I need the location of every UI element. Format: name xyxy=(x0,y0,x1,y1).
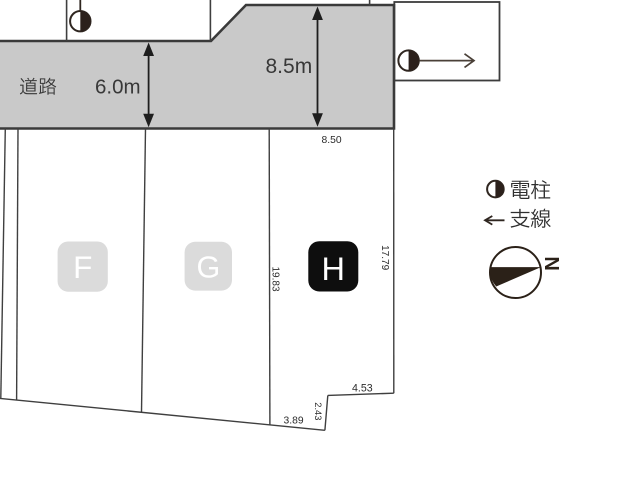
svg-text:8.50: 8.50 xyxy=(322,135,342,146)
svg-text:17.79: 17.79 xyxy=(379,245,390,270)
svg-text:2.43: 2.43 xyxy=(313,402,323,420)
svg-text:G: G xyxy=(197,250,221,284)
svg-text:N: N xyxy=(540,256,562,270)
svg-text:F: F xyxy=(73,249,92,285)
svg-text:19.83: 19.83 xyxy=(269,267,280,292)
svg-text:H: H xyxy=(322,251,345,287)
svg-text:6.0m: 6.0m xyxy=(95,75,141,98)
svg-text:4.53: 4.53 xyxy=(352,382,373,394)
svg-text:3.89: 3.89 xyxy=(284,415,304,426)
svg-text:8.5m: 8.5m xyxy=(266,55,313,78)
